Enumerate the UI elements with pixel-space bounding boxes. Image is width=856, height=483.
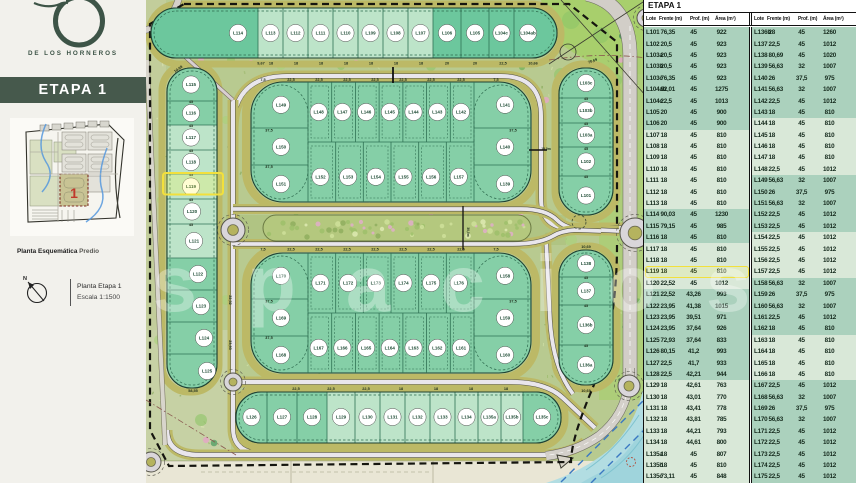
svg-text:L148: L148: [314, 110, 325, 115]
svg-text:L157: L157: [454, 175, 465, 180]
svg-text:L120: L120: [187, 209, 198, 214]
svg-text:L171: L171: [315, 281, 326, 286]
svg-text:L163: L163: [408, 346, 419, 351]
svg-text:L113: L113: [265, 31, 276, 36]
svg-text:22,5: 22,5: [287, 248, 294, 252]
svg-text:L156: L156: [426, 175, 437, 180]
svg-text:18: 18: [269, 62, 273, 66]
svg-text:L136b: L136b: [579, 323, 592, 328]
svg-text:L101: L101: [581, 193, 592, 198]
svg-text:45: 45: [189, 100, 193, 104]
svg-text:18: 18: [419, 62, 423, 66]
svg-text:22,5: 22,5: [362, 387, 369, 391]
svg-text:45: 45: [584, 122, 588, 126]
svg-text:22,52: 22,52: [228, 295, 232, 305]
svg-text:L150: L150: [276, 145, 287, 150]
svg-text:22,5: 22,5: [399, 78, 406, 82]
svg-text:L126: L126: [246, 415, 257, 420]
svg-text:10,69: 10,69: [581, 389, 591, 393]
svg-text:L136a: L136a: [580, 363, 593, 368]
svg-text:18: 18: [344, 62, 348, 66]
svg-text:L105: L105: [470, 31, 481, 36]
svg-text:L104c: L104c: [495, 31, 508, 36]
svg-text:18: 18: [399, 387, 403, 391]
svg-text:L149: L149: [276, 103, 287, 108]
svg-text:L176: L176: [454, 281, 465, 286]
svg-text:45: 45: [584, 147, 588, 151]
svg-text:L135c: L135c: [536, 415, 549, 420]
svg-text:L139: L139: [500, 182, 511, 187]
svg-text:L146: L146: [361, 110, 372, 115]
svg-text:20: 20: [445, 62, 449, 66]
svg-text:22,5: 22,5: [315, 78, 322, 82]
svg-text:9,67: 9,67: [257, 62, 264, 66]
svg-text:L134: L134: [461, 415, 472, 420]
svg-text:45: 45: [584, 344, 588, 348]
svg-text:45: 45: [584, 175, 588, 179]
svg-text:L103b: L103b: [579, 108, 592, 113]
svg-text:L110: L110: [340, 31, 351, 36]
svg-text:L104ab: L104ab: [520, 31, 536, 36]
svg-text:L109: L109: [365, 31, 376, 36]
svg-text:7,5: 7,5: [260, 248, 265, 252]
svg-text:37,5: 37,5: [265, 129, 272, 133]
svg-text:L160: L160: [500, 353, 511, 358]
svg-text:7,5: 7,5: [493, 78, 498, 82]
svg-text:L129: L129: [336, 415, 347, 420]
svg-text:30,0m: 30,0m: [466, 227, 470, 237]
svg-text:L135a: L135a: [483, 415, 496, 420]
svg-text:23,95: 23,95: [228, 340, 232, 350]
svg-text:L151: L151: [276, 182, 287, 187]
svg-text:L153: L153: [343, 175, 354, 180]
svg-text:37,5: 37,5: [265, 336, 272, 340]
svg-text:L133: L133: [437, 415, 448, 420]
svg-text:L130: L130: [362, 415, 373, 420]
svg-text:L106: L106: [442, 31, 453, 36]
svg-text:22,5: 22,5: [371, 78, 378, 82]
svg-text:L124: L124: [199, 336, 210, 341]
svg-text:L138: L138: [581, 261, 592, 266]
svg-text:22,5: 22,5: [399, 248, 406, 252]
svg-text:L172: L172: [343, 281, 354, 286]
svg-text:18: 18: [394, 62, 398, 66]
svg-text:L158: L158: [500, 274, 511, 279]
svg-text:7,5: 7,5: [493, 248, 498, 252]
svg-text:22,5: 22,5: [427, 78, 434, 82]
svg-text:L115: L115: [186, 82, 197, 87]
svg-text:L103a: L103a: [580, 133, 593, 138]
svg-text:L137: L137: [581, 289, 592, 294]
svg-text:22,5: 22,5: [292, 387, 299, 391]
svg-text:L152: L152: [315, 175, 326, 180]
svg-text:L118: L118: [186, 160, 197, 165]
svg-text:20: 20: [473, 62, 477, 66]
svg-text:L117: L117: [186, 135, 197, 140]
svg-text:L167: L167: [314, 346, 325, 351]
svg-text:L140: L140: [500, 145, 511, 150]
svg-text:10,66: 10,66: [528, 62, 538, 66]
svg-text:37,5: 37,5: [265, 165, 272, 169]
svg-text:L141: L141: [500, 103, 511, 108]
svg-text:L135b: L135b: [505, 415, 518, 420]
svg-text:45: 45: [584, 276, 588, 280]
svg-text:L116: L116: [186, 111, 197, 116]
svg-text:22,5: 22,5: [343, 78, 350, 82]
svg-text:7,5: 7,5: [260, 78, 265, 82]
svg-text:L142: L142: [456, 110, 467, 115]
svg-text:L170: L170: [276, 274, 287, 279]
svg-text:22,5: 22,5: [371, 248, 378, 252]
svg-text:L164: L164: [385, 346, 396, 351]
svg-text:18: 18: [369, 62, 373, 66]
svg-text:37,5: 37,5: [509, 129, 516, 133]
svg-text:L131: L131: [387, 415, 398, 420]
svg-text:L173: L173: [371, 281, 382, 286]
svg-text:L155: L155: [398, 175, 409, 180]
svg-text:45: 45: [584, 304, 588, 308]
svg-text:L143: L143: [432, 110, 443, 115]
svg-text:L175: L175: [426, 281, 437, 286]
svg-text:L111: L111: [316, 31, 326, 36]
svg-text:22,5: 22,5: [457, 78, 464, 82]
svg-text:L128: L128: [307, 415, 318, 420]
svg-text:1: 1: [70, 185, 78, 201]
svg-text:L147: L147: [337, 110, 348, 115]
svg-text:L169: L169: [276, 316, 287, 321]
svg-text:18: 18: [469, 387, 473, 391]
svg-text:L165: L165: [361, 346, 372, 351]
svg-text:18: 18: [504, 387, 508, 391]
svg-text:18: 18: [294, 62, 298, 66]
svg-text:22,5: 22,5: [343, 248, 350, 252]
svg-text:22,5: 22,5: [315, 248, 322, 252]
svg-text:L166: L166: [337, 346, 348, 351]
svg-text:L108: L108: [390, 31, 401, 36]
svg-text:L127: L127: [277, 415, 288, 420]
svg-text:58,55: 58,55: [188, 389, 198, 393]
svg-text:L132: L132: [412, 415, 423, 420]
svg-text:L168: L168: [276, 353, 287, 358]
svg-text:45: 45: [189, 124, 193, 128]
svg-text:L174: L174: [398, 281, 409, 286]
svg-text:37,5: 37,5: [265, 300, 272, 304]
svg-text:L161: L161: [456, 346, 467, 351]
svg-text:L112: L112: [290, 31, 301, 36]
svg-text:45: 45: [189, 223, 193, 227]
svg-text:22,5: 22,5: [287, 78, 294, 82]
svg-text:22,5: 22,5: [427, 248, 434, 252]
svg-text:45: 45: [584, 97, 588, 101]
svg-text:L121: L121: [189, 239, 200, 244]
svg-text:L122: L122: [193, 272, 204, 277]
svg-text:22,5: 22,5: [327, 387, 334, 391]
svg-text:45: 45: [189, 198, 193, 202]
svg-text:22,5: 22,5: [499, 62, 506, 66]
svg-text:10,69: 10,69: [581, 245, 591, 249]
svg-text:L154: L154: [371, 175, 382, 180]
svg-text:18: 18: [434, 387, 438, 391]
svg-text:L123: L123: [196, 304, 207, 309]
svg-text:L159: L159: [500, 316, 511, 321]
svg-text:37,5: 37,5: [509, 300, 516, 304]
svg-text:L114: L114: [233, 31, 244, 36]
svg-text:N: N: [23, 276, 27, 282]
svg-text:L162: L162: [432, 346, 443, 351]
svg-text:18: 18: [319, 62, 323, 66]
svg-text:L145: L145: [385, 110, 396, 115]
svg-text:L107: L107: [415, 31, 426, 36]
svg-text:L125: L125: [202, 369, 213, 374]
svg-text:L144: L144: [408, 110, 419, 115]
svg-text:45: 45: [189, 149, 193, 153]
svg-text:L103c: L103c: [580, 81, 593, 86]
svg-text:L102: L102: [581, 159, 592, 164]
